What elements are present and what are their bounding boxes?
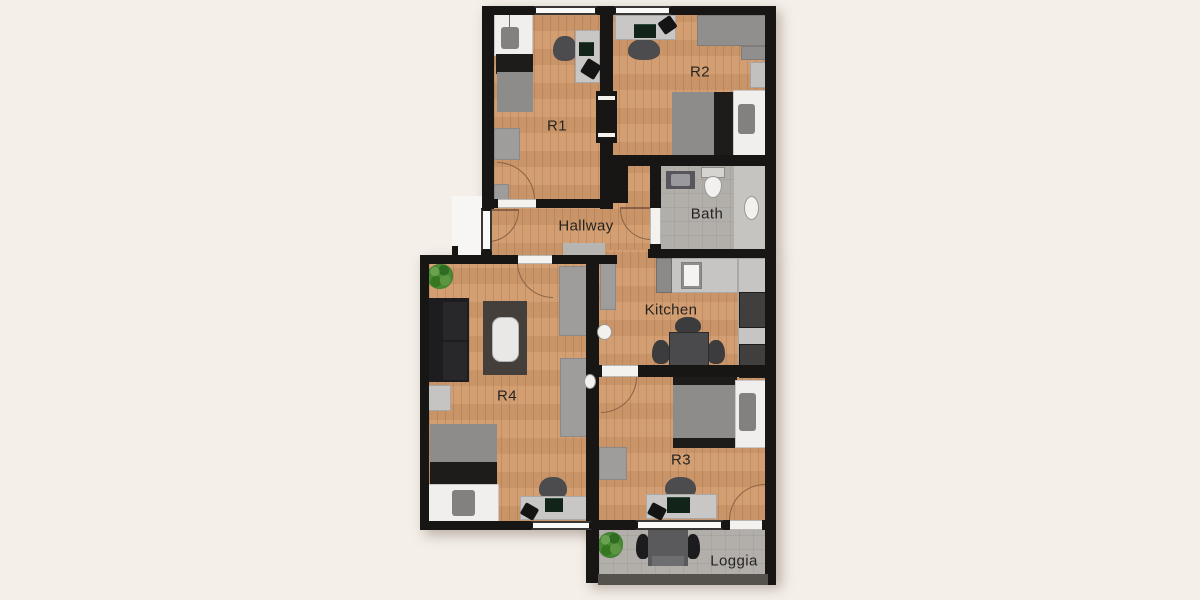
bath-shower-drain bbox=[744, 196, 759, 220]
kitchen-chair-right bbox=[707, 340, 725, 364]
r4-plant bbox=[427, 264, 453, 289]
r2-bed-blanket bbox=[672, 92, 716, 158]
r1-bed-frame bbox=[496, 54, 533, 74]
entrance-door bbox=[481, 208, 492, 252]
loggia-door-opening bbox=[727, 520, 765, 530]
r4-laptop bbox=[545, 498, 563, 512]
r1-wardrobe bbox=[494, 128, 520, 160]
room-label-hallway: Hallway bbox=[558, 218, 613, 235]
room-label-r3: R3 bbox=[671, 452, 691, 469]
r4-sofa-cushion bbox=[443, 302, 467, 340]
r1-desk-chair bbox=[553, 36, 577, 61]
r4-wardrobe-upper bbox=[559, 266, 587, 336]
kitchen-chair-left bbox=[652, 340, 670, 364]
loggia-plant bbox=[598, 532, 623, 558]
room-label-bath: Bath bbox=[691, 206, 723, 223]
r4-bed-pillow bbox=[452, 490, 475, 516]
r2-wardrobe bbox=[697, 15, 768, 46]
wall-right bbox=[765, 6, 776, 585]
kitchen-sink bbox=[681, 262, 702, 289]
kitchen-fridge bbox=[739, 292, 766, 328]
room-label-r4: R4 bbox=[497, 388, 517, 405]
r2-window bbox=[613, 6, 672, 15]
r1-door-opening bbox=[495, 199, 539, 208]
wall-landing-edge bbox=[452, 246, 458, 264]
wall-entrance-below bbox=[481, 250, 492, 264]
r4-door-opening bbox=[515, 255, 555, 264]
wall-center-vertical bbox=[586, 255, 599, 583]
r2-bed-frame bbox=[714, 92, 733, 158]
wall-r1-left bbox=[482, 6, 494, 209]
room-label-r1: R1 bbox=[547, 118, 567, 135]
wall-r4-left bbox=[420, 255, 429, 530]
room-label-loggia: Loggia bbox=[710, 553, 757, 570]
kitchen-table bbox=[669, 332, 709, 369]
r4-window bbox=[530, 521, 592, 530]
wall-hall-bath-corner bbox=[611, 162, 628, 203]
floor-plan-canvas: R1 R2 Bath Hallway Kitchen R4 R3 Loggia bbox=[0, 0, 1200, 600]
r1-bed-pillow bbox=[501, 27, 519, 49]
r3-bed-blanket bbox=[673, 385, 737, 442]
r4-side-table bbox=[427, 385, 451, 411]
bath-sink bbox=[671, 174, 690, 186]
r1-laptop bbox=[579, 42, 594, 56]
kitchen-stove bbox=[656, 258, 672, 293]
shaft-vent-line bbox=[598, 96, 615, 100]
r4-sofa-cushion bbox=[443, 342, 467, 380]
r3-door-opening bbox=[599, 365, 641, 377]
wall-r2-bottom bbox=[611, 155, 775, 166]
hallway-floor-bath-strip bbox=[626, 164, 650, 207]
bath-door-opening bbox=[650, 205, 661, 247]
loggia-parapet bbox=[598, 574, 768, 585]
r4-wardrobe-lower bbox=[560, 358, 588, 437]
kitchen-wall-basin bbox=[597, 324, 612, 340]
r3-bed-frame-bottom bbox=[673, 438, 737, 448]
r4-coffee-table bbox=[492, 317, 519, 362]
shaft-vent-line bbox=[598, 133, 615, 137]
r3-wardrobe bbox=[599, 447, 627, 480]
r4-bed-frame bbox=[430, 462, 497, 486]
room-label-kitchen: Kitchen bbox=[645, 302, 698, 319]
r3-bed-pillow bbox=[739, 393, 756, 431]
r3-laptop bbox=[667, 497, 690, 513]
room-label-r2: R2 bbox=[690, 64, 710, 81]
r1-window bbox=[533, 6, 598, 15]
r2-desk-chair bbox=[628, 39, 660, 60]
r2-bed-pillow bbox=[738, 104, 755, 134]
wall-bath-bottom bbox=[648, 249, 775, 258]
r3-window bbox=[635, 520, 724, 530]
r1-bed-blanket bbox=[497, 72, 533, 112]
loggia-table-edge bbox=[652, 556, 684, 566]
loggia-chair-right bbox=[686, 534, 700, 559]
wall-junction-basin bbox=[584, 374, 596, 389]
kitchen-cabinet-left bbox=[600, 258, 616, 310]
r2-laptop bbox=[634, 24, 656, 38]
r2-wardrobe-side bbox=[741, 46, 768, 60]
r1-bed-lamp-line bbox=[509, 14, 510, 28]
